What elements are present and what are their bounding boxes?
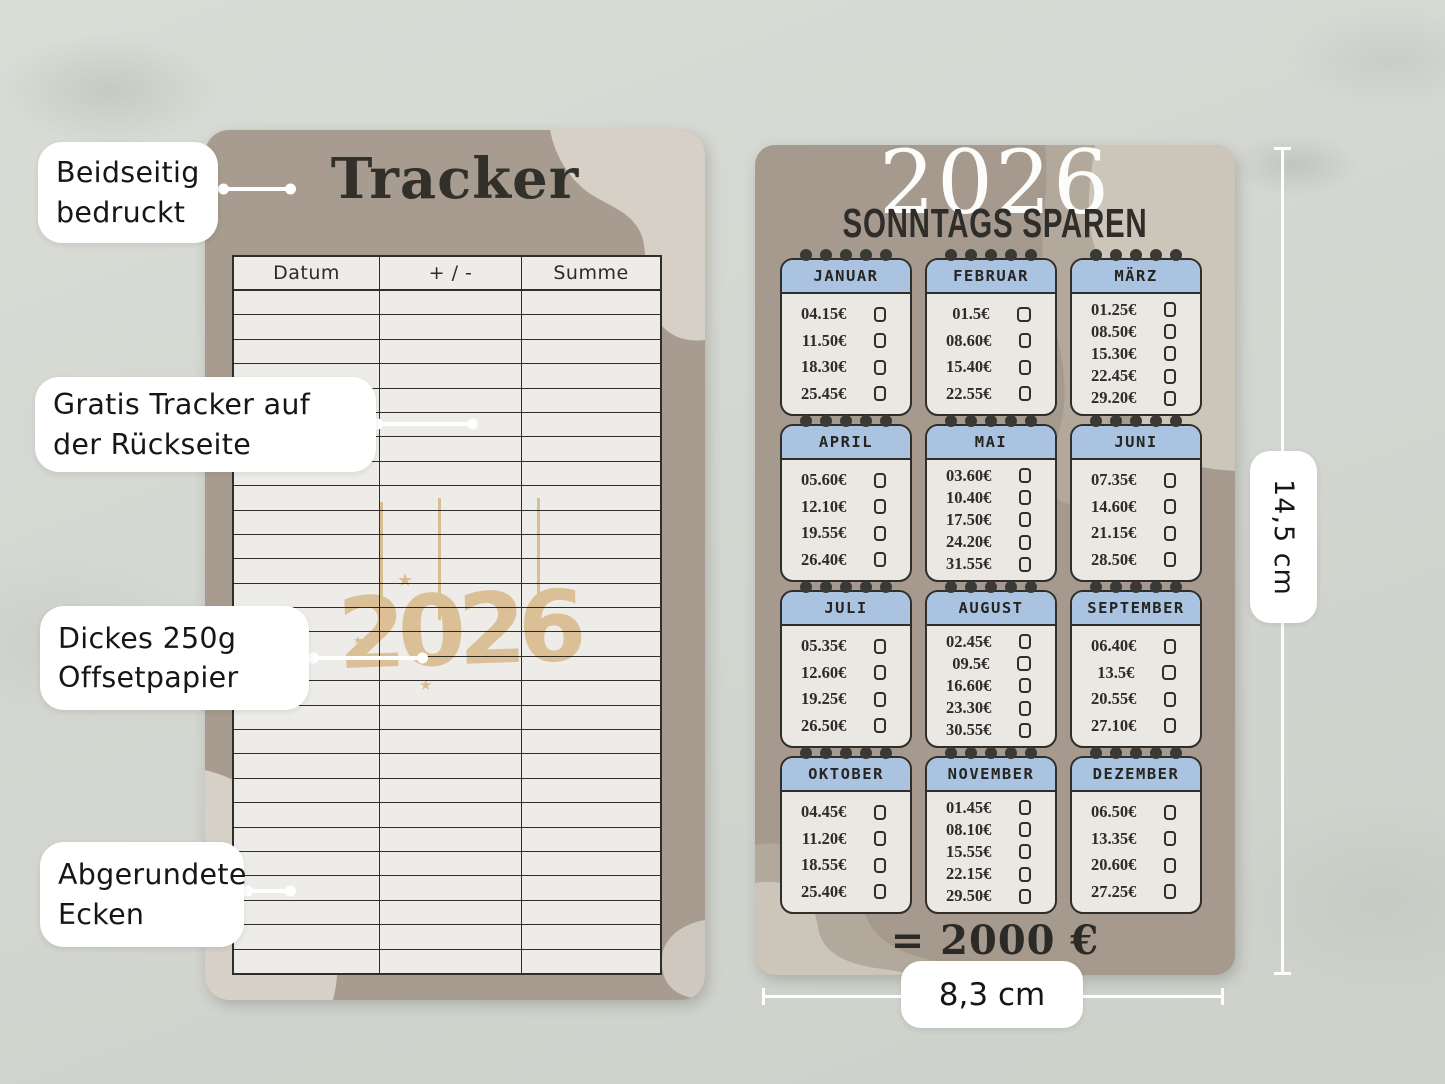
entry-amount: 5€ xyxy=(973,306,1018,323)
entry-amount: 50€ xyxy=(822,718,875,735)
binder-dot-icon xyxy=(985,747,997,759)
month-name: OKTOBER xyxy=(782,758,910,792)
savings-entry-row: 24. 20€ xyxy=(927,534,1055,551)
entry-checkbox xyxy=(1019,468,1031,483)
savings-entry-row: 04. 15€ xyxy=(782,306,910,323)
binder-dot-icon xyxy=(1150,581,1162,593)
tracker-empty-cell xyxy=(234,730,379,753)
binder-dot-icon xyxy=(1130,581,1142,593)
entry-checkbox xyxy=(1019,490,1031,505)
binder-dot-icon xyxy=(1110,415,1122,427)
entry-amount: 50€ xyxy=(967,888,1020,905)
binder-dot-icon xyxy=(985,581,997,593)
entry-amount: 10€ xyxy=(967,822,1020,839)
tracker-empty-cell xyxy=(379,852,522,875)
entry-date: 28. xyxy=(1088,552,1112,569)
tracker-empty-row xyxy=(234,925,660,949)
entry-date: 11. xyxy=(798,333,822,350)
entry-date: 01. xyxy=(943,306,973,323)
tracker-empty-cell xyxy=(379,511,522,534)
entry-checkbox xyxy=(1164,639,1176,654)
savings-entry-row: 13. 5€ xyxy=(1072,665,1200,682)
entry-checkbox xyxy=(874,665,886,680)
savings-entry-row: 21. 15€ xyxy=(1072,525,1200,542)
tracker-empty-cell xyxy=(522,559,660,582)
month-name: JULI xyxy=(782,592,910,626)
tracker-empty-cell xyxy=(234,925,379,948)
entry-amount: 60€ xyxy=(1112,857,1165,874)
month-card: MÄRZ 01. 25€ 08. 50€ 15. 30€ 22. 45€ 29.… xyxy=(1070,249,1202,416)
tracker-empty-cell xyxy=(522,632,660,655)
callout-line xyxy=(246,889,292,893)
savings-entry-row: 19. 55€ xyxy=(782,525,910,542)
binder-dot-icon xyxy=(860,249,872,261)
entry-checkbox xyxy=(874,386,886,401)
entry-amount: 45€ xyxy=(967,800,1020,817)
entry-date: 22. xyxy=(943,866,967,883)
entry-checkbox xyxy=(874,333,886,348)
entry-date: 24. xyxy=(943,534,967,551)
month-entries: 03. 60€ 10. 40€ 17. 50€ 24. 20€ 31. 55€ xyxy=(927,460,1055,580)
tracker-empty-row xyxy=(234,706,660,730)
entry-date: 16. xyxy=(943,678,967,695)
entry-date: 21. xyxy=(1088,525,1112,542)
savings-entry-row: 07. 35€ xyxy=(1072,472,1200,489)
tracker-empty-cell xyxy=(234,291,379,314)
binder-dot-icon xyxy=(880,747,892,759)
binder-dot-icon xyxy=(945,581,957,593)
tracker-empty-cell xyxy=(379,803,522,826)
binder-dot-icon xyxy=(965,747,977,759)
month-card: OKTOBER 04. 45€ 11. 20€ 18. 55€ 25. 40€ xyxy=(780,747,912,914)
entry-date: 17. xyxy=(943,512,967,529)
entry-amount: 50€ xyxy=(1112,324,1165,341)
column-header-plusminus: + / - xyxy=(379,257,522,289)
months-grid: JANUAR 04. 15€ 11. 50€ 18. 30€ 25. 45€ F… xyxy=(780,249,1202,913)
entry-checkbox xyxy=(1017,307,1031,322)
entry-date: 14. xyxy=(1088,499,1112,516)
month-card: APRIL 05. 60€ 12. 10€ 19. 55€ 26. 40€ xyxy=(780,415,912,582)
tracker-empty-row xyxy=(234,901,660,925)
tracker-empty-cell xyxy=(234,340,379,363)
binder-dots-icon xyxy=(1070,249,1202,262)
tracker-empty-cell xyxy=(522,486,660,509)
tracker-empty-cell xyxy=(522,754,660,777)
tracker-empty-row xyxy=(234,584,660,608)
entry-amount: 55€ xyxy=(822,857,875,874)
savings-entry-row: 20. 60€ xyxy=(1072,857,1200,874)
entry-date: 23. xyxy=(943,700,967,717)
tracker-empty-cell xyxy=(522,828,660,851)
entry-amount: 5€ xyxy=(1118,665,1163,682)
binder-dots-icon xyxy=(780,581,912,594)
binder-dot-icon xyxy=(820,249,832,261)
tracker-empty-cell xyxy=(379,779,522,802)
binder-dot-icon xyxy=(880,581,892,593)
tracker-empty-cell xyxy=(379,632,522,655)
entry-amount: 10€ xyxy=(1112,718,1165,735)
entry-amount: 40€ xyxy=(1112,638,1165,655)
binder-dots-icon xyxy=(1070,747,1202,760)
binder-dot-icon xyxy=(1130,747,1142,759)
entry-checkbox xyxy=(1019,634,1031,649)
binder-dot-icon xyxy=(1005,415,1017,427)
savings-entry-row: 10. 40€ xyxy=(927,490,1055,507)
binder-dot-icon xyxy=(1090,249,1102,261)
entry-amount: 60€ xyxy=(822,665,875,682)
tracker-empty-cell xyxy=(522,779,660,802)
tracker-empty-cell xyxy=(522,876,660,899)
savings-entry-row: 29. 50€ xyxy=(927,888,1055,905)
savings-entry-row: 03. 60€ xyxy=(927,468,1055,485)
tracker-empty-cell xyxy=(522,364,660,387)
entry-date: 04. xyxy=(798,804,822,821)
binder-dot-icon xyxy=(1090,581,1102,593)
savings-entry-row: 15. 55€ xyxy=(927,844,1055,861)
entry-date: 25. xyxy=(798,884,822,901)
binder-dot-icon xyxy=(820,581,832,593)
entry-date: 09. xyxy=(943,656,973,673)
entry-checkbox xyxy=(1164,692,1176,707)
savings-entry-row: 26. 40€ xyxy=(782,552,910,569)
entry-amount: 35€ xyxy=(822,638,875,655)
label-abgerundete-ecken: Abgerundete Ecken xyxy=(40,842,244,947)
entry-date: 01. xyxy=(943,800,967,817)
entry-amount: 15€ xyxy=(822,306,875,323)
binder-dot-icon xyxy=(965,415,977,427)
binder-dot-icon xyxy=(1110,249,1122,261)
tracker-empty-row xyxy=(234,803,660,827)
entry-amount: 25€ xyxy=(1112,884,1165,901)
tracker-empty-cell xyxy=(379,754,522,777)
savings-entry-row: 11. 50€ xyxy=(782,333,910,350)
entry-amount: 60€ xyxy=(967,678,1020,695)
binder-dot-icon xyxy=(985,249,997,261)
callout-line xyxy=(376,422,474,426)
binder-dot-icon xyxy=(1005,581,1017,593)
column-header-datum: Datum xyxy=(234,257,379,289)
tracker-empty-cell xyxy=(522,511,660,534)
binder-dot-icon xyxy=(1110,747,1122,759)
month-name: SEPTEMBER xyxy=(1072,592,1200,626)
tracker-empty-cell xyxy=(234,950,379,973)
binder-dot-icon xyxy=(800,581,812,593)
tracker-empty-cell xyxy=(379,559,522,582)
entry-amount: 20€ xyxy=(822,831,875,848)
savings-entry-row: 25. 45€ xyxy=(782,386,910,403)
month-name: APRIL xyxy=(782,426,910,460)
month-name: AUGUST xyxy=(927,592,1055,626)
tracker-empty-cell xyxy=(522,803,660,826)
binder-dot-icon xyxy=(945,415,957,427)
entry-checkbox xyxy=(874,499,886,514)
entry-amount: 40€ xyxy=(822,552,875,569)
binder-dot-icon xyxy=(860,581,872,593)
tracker-empty-cell xyxy=(379,535,522,558)
label-beidseitig-bedruckt: Beidseitig bedruckt xyxy=(38,142,218,243)
month-entries: 06. 50€ 13. 35€ 20. 60€ 27. 25€ xyxy=(1072,792,1200,912)
entry-date: 26. xyxy=(798,552,822,569)
tracker-empty-cell xyxy=(234,852,379,875)
tracker-empty-cell xyxy=(234,486,379,509)
entry-checkbox xyxy=(1019,889,1031,904)
tracker-empty-cell xyxy=(522,291,660,314)
entry-date: 07. xyxy=(1088,472,1112,489)
month-name: MÄRZ xyxy=(1072,260,1200,294)
entry-checkbox xyxy=(1164,346,1176,361)
binder-dot-icon xyxy=(1005,249,1017,261)
entry-date: 08. xyxy=(1088,324,1112,341)
binder-dots-icon xyxy=(925,581,1057,594)
tracker-empty-cell xyxy=(522,901,660,924)
tracker-empty-cell xyxy=(522,584,660,607)
entry-checkbox xyxy=(1019,535,1031,550)
tracker-empty-cell xyxy=(379,608,522,631)
month-card: MAI 03. 60€ 10. 40€ 17. 50€ 24. 20€ 31. … xyxy=(925,415,1057,582)
tracker-empty-cell xyxy=(379,706,522,729)
month-box: JULI 05. 35€ 12. 60€ 19. 25€ 26. 50€ xyxy=(780,590,912,748)
entry-amount: 55€ xyxy=(1112,691,1165,708)
savings-entry-row: 22. 15€ xyxy=(927,866,1055,883)
entry-checkbox xyxy=(874,831,886,846)
product-photo: Tracker Datum + / - Summe 2026 ★ ★ ★ ★ xyxy=(0,0,1445,1084)
tracker-empty-row xyxy=(234,486,660,510)
tracker-empty-cell xyxy=(379,828,522,851)
tracker-empty-cell xyxy=(379,462,522,485)
month-entries: 06. 40€ 13. 5€ 20. 55€ 27. 10€ xyxy=(1072,626,1200,746)
entry-date: 08. xyxy=(943,822,967,839)
label-line: Gratis Tracker auf xyxy=(53,385,358,424)
entry-checkbox xyxy=(1019,386,1031,401)
label-line: Dickes 250g xyxy=(58,619,291,658)
tracker-empty-cell xyxy=(234,803,379,826)
entry-checkbox xyxy=(1164,718,1176,733)
binder-dot-icon xyxy=(1170,415,1182,427)
savings-entry-row: 17. 50€ xyxy=(927,512,1055,529)
tracker-empty-cell xyxy=(522,315,660,338)
binder-dots-icon xyxy=(780,747,912,760)
entry-amount: 5€ xyxy=(973,656,1018,673)
entry-date: 15. xyxy=(943,359,967,376)
entry-amount: 55€ xyxy=(967,722,1020,739)
label-line: bedruckt xyxy=(56,193,200,232)
entry-amount: 60€ xyxy=(967,333,1020,350)
binder-dot-icon xyxy=(1130,415,1142,427)
tracker-empty-cell xyxy=(379,340,522,363)
tracker-empty-cell xyxy=(379,681,522,704)
month-entries: 07. 35€ 14. 60€ 21. 15€ 28. 50€ xyxy=(1072,460,1200,580)
savings-entry-row: 01. 45€ xyxy=(927,800,1055,817)
tracker-empty-row xyxy=(234,950,660,973)
entry-checkbox xyxy=(874,884,886,899)
tracker-empty-cell xyxy=(379,389,522,412)
binder-dot-icon xyxy=(1025,415,1037,427)
savings-entry-row: 06. 40€ xyxy=(1072,638,1200,655)
savings-entry-row: 01. 25€ xyxy=(1072,302,1200,319)
month-card: NOVEMBER 01. 45€ 08. 10€ 15. 55€ 22. 15€… xyxy=(925,747,1057,914)
savings-entry-row: 13. 35€ xyxy=(1072,831,1200,848)
entry-date: 05. xyxy=(798,638,822,655)
entry-checkbox xyxy=(1019,333,1031,348)
entry-checkbox xyxy=(1164,302,1176,317)
tracker-empty-row xyxy=(234,511,660,535)
tracker-empty-row xyxy=(234,340,660,364)
savings-entry-row: 09. 5€ xyxy=(927,656,1055,673)
entry-amount: 45€ xyxy=(822,386,875,403)
binder-dot-icon xyxy=(1170,581,1182,593)
height-dimension-label: 14,5 cm xyxy=(1250,451,1317,623)
month-card: JUNI 07. 35€ 14. 60€ 21. 15€ 28. 50€ xyxy=(1070,415,1202,582)
entry-checkbox xyxy=(1017,656,1031,671)
entry-checkbox xyxy=(1164,831,1176,846)
binder-dot-icon xyxy=(820,415,832,427)
entry-amount: 45€ xyxy=(1112,368,1165,385)
entry-checkbox xyxy=(874,718,886,733)
entry-amount: 45€ xyxy=(967,634,1020,651)
savings-entry-row: 27. 25€ xyxy=(1072,884,1200,901)
entry-checkbox xyxy=(874,692,886,707)
savings-entry-row: 18. 55€ xyxy=(782,857,910,874)
month-box: FEBRUAR 01. 5€ 08. 60€ 15. 40€ 22. 55€ xyxy=(925,258,1057,416)
savings-entry-row: 25. 40€ xyxy=(782,884,910,901)
label-gratis-tracker: Gratis Tracker auf der Rückseite xyxy=(35,377,376,472)
savings-entry-row: 12. 10€ xyxy=(782,499,910,516)
tracker-empty-cell xyxy=(234,779,379,802)
label-line: Beidseitig xyxy=(56,153,200,192)
label-line: Offsetpapier xyxy=(58,658,291,697)
entry-amount: 60€ xyxy=(1112,499,1165,516)
entry-checkbox xyxy=(874,526,886,541)
tracker-empty-cell xyxy=(522,925,660,948)
entry-checkbox xyxy=(1164,805,1176,820)
tracker-empty-cell xyxy=(379,291,522,314)
entry-amount: 20€ xyxy=(967,534,1020,551)
entry-checkbox xyxy=(1164,499,1176,514)
label-line: Ecken xyxy=(58,895,226,934)
tracker-empty-cell xyxy=(234,828,379,851)
savings-entry-row: 01. 5€ xyxy=(927,306,1055,323)
binder-dot-icon xyxy=(800,415,812,427)
tracker-empty-cell xyxy=(379,657,522,680)
entry-checkbox xyxy=(874,307,886,322)
tracker-empty-cell xyxy=(234,559,379,582)
entry-date: 26. xyxy=(798,718,822,735)
tracker-empty-cell xyxy=(522,681,660,704)
entry-date: 31. xyxy=(943,556,967,573)
savings-entry-row: 29. 20€ xyxy=(1072,390,1200,407)
entry-date: 04. xyxy=(798,306,822,323)
savings-entry-row: 15. 40€ xyxy=(927,359,1055,376)
tracker-empty-row xyxy=(234,876,660,900)
entry-checkbox xyxy=(1019,844,1031,859)
entry-checkbox xyxy=(1164,473,1176,488)
tracker-empty-row xyxy=(234,291,660,315)
savings-entry-row: 04. 45€ xyxy=(782,804,910,821)
tracker-empty-cell xyxy=(379,876,522,899)
tracker-empty-cell xyxy=(234,315,379,338)
entry-date: 13. xyxy=(1088,831,1112,848)
tracker-empty-row xyxy=(234,779,660,803)
tracker-empty-row xyxy=(234,754,660,778)
total-amount: = 2000 € xyxy=(755,917,1235,964)
month-box: AUGUST 02. 45€ 09. 5€ 16. 60€ 23. 30€ 30… xyxy=(925,590,1057,748)
month-box: MAI 03. 60€ 10. 40€ 17. 50€ 24. 20€ 31. … xyxy=(925,424,1057,582)
binder-dot-icon xyxy=(800,249,812,261)
entry-amount: 15€ xyxy=(1112,525,1165,542)
tracker-empty-row xyxy=(234,535,660,559)
savings-entry-row: 18. 30€ xyxy=(782,359,910,376)
savings-card: 2026 SONNTAGS SPAREN JANUAR 04. 15€ 11. … xyxy=(755,145,1235,975)
entry-amount: 55€ xyxy=(967,844,1020,861)
month-box: NOVEMBER 01. 45€ 08. 10€ 15. 55€ 22. 15€… xyxy=(925,756,1057,914)
entry-date: 02. xyxy=(943,634,967,651)
month-card: JULI 05. 35€ 12. 60€ 19. 25€ 26. 50€ xyxy=(780,581,912,748)
tracker-empty-cell xyxy=(379,730,522,753)
month-box: APRIL 05. 60€ 12. 10€ 19. 55€ 26. 40€ xyxy=(780,424,912,582)
tracker-empty-cell xyxy=(234,584,379,607)
tracker-empty-cell xyxy=(379,364,522,387)
entry-date: 29. xyxy=(943,888,967,905)
width-value: 8,3 cm xyxy=(939,977,1045,1013)
tracker-empty-cell xyxy=(234,754,379,777)
binder-dot-icon xyxy=(840,415,852,427)
savings-entry-row: 11. 20€ xyxy=(782,831,910,848)
tracker-empty-cell xyxy=(522,657,660,680)
binder-dots-icon xyxy=(1070,415,1202,428)
savings-entry-row: 22. 55€ xyxy=(927,386,1055,403)
tracker-empty-cell xyxy=(234,535,379,558)
entry-date: 19. xyxy=(798,691,822,708)
month-box: MÄRZ 01. 25€ 08. 50€ 15. 30€ 22. 45€ 29.… xyxy=(1070,258,1202,416)
entry-checkbox xyxy=(1164,884,1176,899)
card-subtitle: SONNTAGS SPAREN xyxy=(822,203,1168,244)
entry-date: 13. xyxy=(1088,665,1118,682)
savings-entry-row: 05. 60€ xyxy=(782,472,910,489)
tracker-title: Tracker xyxy=(205,146,705,212)
month-box: JANUAR 04. 15€ 11. 50€ 18. 30€ 25. 45€ xyxy=(780,258,912,416)
binder-dot-icon xyxy=(985,415,997,427)
entry-amount: 50€ xyxy=(1112,804,1165,821)
entry-checkbox xyxy=(1019,512,1031,527)
tracker-empty-row xyxy=(234,828,660,852)
binder-dot-icon xyxy=(840,249,852,261)
entry-date: 08. xyxy=(943,333,967,350)
binder-dot-icon xyxy=(1090,747,1102,759)
entry-amount: 50€ xyxy=(822,333,875,350)
entry-date: 15. xyxy=(943,844,967,861)
binder-dot-icon xyxy=(965,249,977,261)
entry-amount: 25€ xyxy=(1112,302,1165,319)
tracker-empty-cell xyxy=(379,950,522,973)
binder-dot-icon xyxy=(800,747,812,759)
binder-dot-icon xyxy=(1110,581,1122,593)
entry-amount: 40€ xyxy=(822,884,875,901)
width-dimension-label: 8,3 cm xyxy=(901,961,1083,1028)
entry-date: 01. xyxy=(1088,302,1112,319)
binder-dot-icon xyxy=(1170,747,1182,759)
entry-date: 03. xyxy=(943,468,967,485)
savings-entry-row: 30. 55€ xyxy=(927,722,1055,739)
month-name: JANUAR xyxy=(782,260,910,294)
month-entries: 02. 45€ 09. 5€ 16. 60€ 23. 30€ 30. 55€ xyxy=(927,626,1055,746)
entry-date: 19. xyxy=(798,525,822,542)
entry-amount: 30€ xyxy=(1112,346,1165,363)
binder-dots-icon xyxy=(925,415,1057,428)
entry-checkbox xyxy=(1164,391,1176,406)
tracker-table-header: Datum + / - Summe xyxy=(234,257,660,291)
callout-line xyxy=(312,656,424,660)
label-line: Abgerundete xyxy=(58,855,226,894)
